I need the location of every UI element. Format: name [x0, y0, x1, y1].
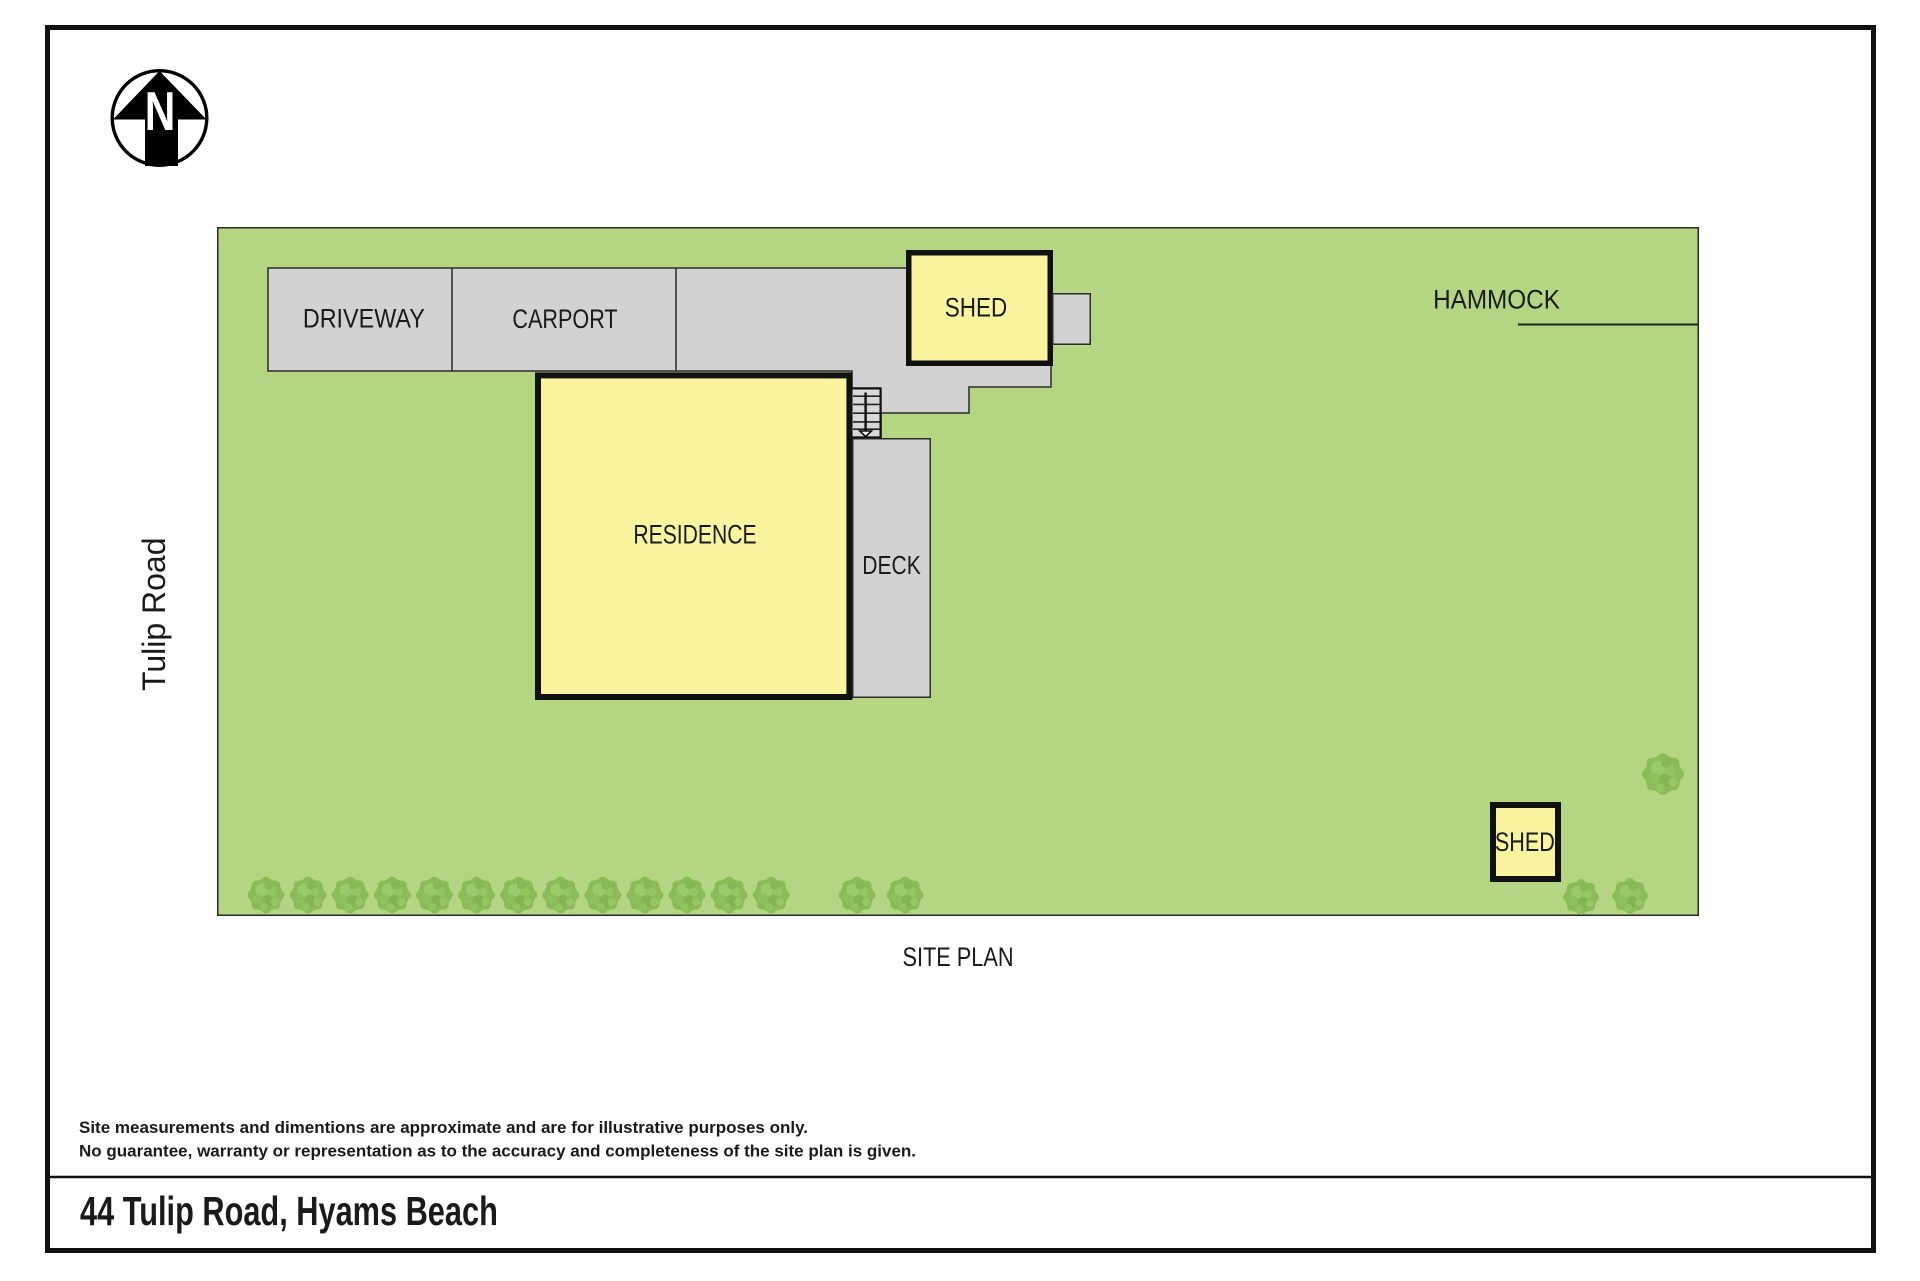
svg-text:SHED: SHED — [1495, 828, 1555, 858]
svg-text:N: N — [145, 82, 176, 143]
svg-text:DRIVEWAY: DRIVEWAY — [303, 304, 425, 334]
svg-text:No guarantee, warranty or repr: No guarantee, warranty or representation… — [79, 1142, 916, 1161]
svg-text:44 Tulip Road, Hyams Beach: 44 Tulip Road, Hyams Beach — [80, 1188, 498, 1234]
svg-text:Tulip Road: Tulip Road — [136, 537, 172, 691]
svg-text:DECK: DECK — [862, 552, 921, 581]
svg-text:CARPORT: CARPORT — [512, 305, 617, 335]
svg-text:SHED: SHED — [945, 294, 1007, 323]
svg-text:SITE PLAN: SITE PLAN — [902, 943, 1013, 973]
svg-text:Site measurements and dimentio: Site measurements and dimentions are app… — [79, 1118, 808, 1137]
svg-text:RESIDENCE: RESIDENCE — [633, 520, 756, 550]
svg-text:HAMMOCK: HAMMOCK — [1433, 285, 1560, 314]
